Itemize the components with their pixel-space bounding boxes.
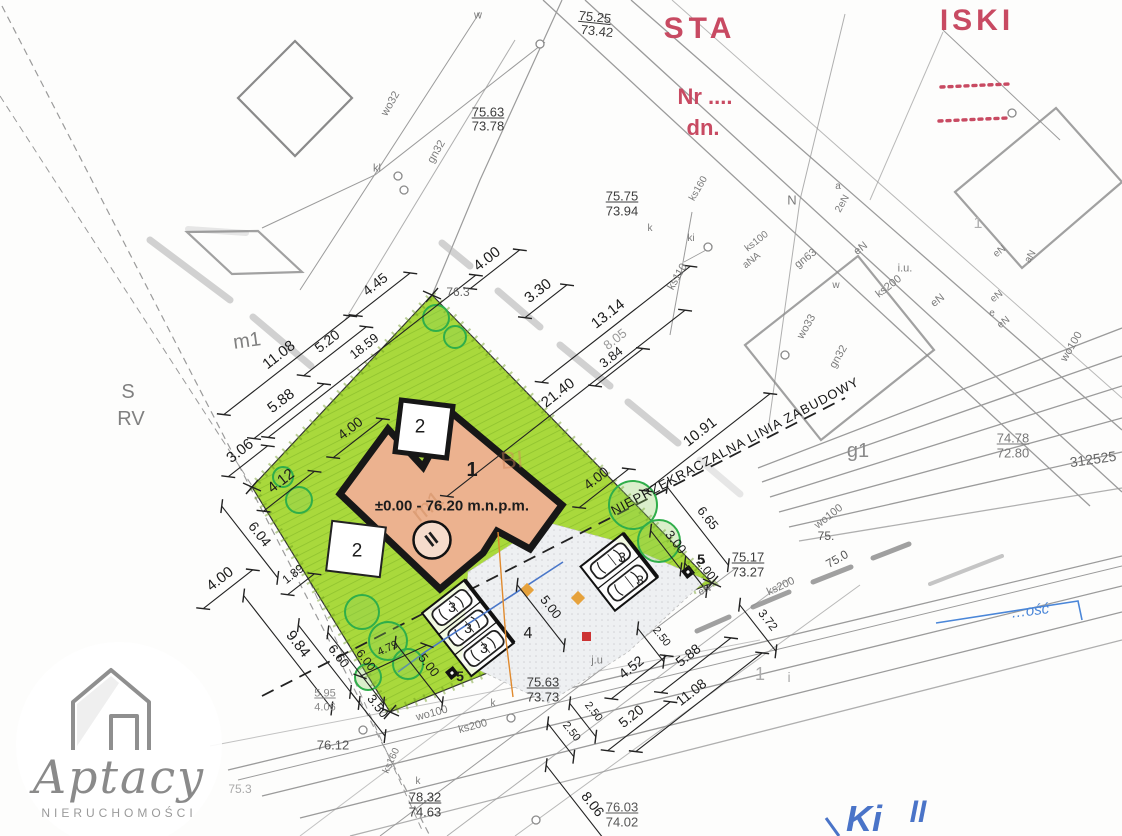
red-node-icon	[582, 632, 591, 641]
blue-box-outline	[936, 601, 1082, 623]
tree-icon	[273, 467, 293, 487]
manhole-icon	[359, 726, 367, 734]
dimension-line	[349, 272, 417, 316]
site-plan-scan: STAISKINr ....dn.75.2573.4275.6373.7875.…	[0, 0, 1122, 836]
tree-icon	[345, 595, 379, 629]
agency-watermark: Aptacy NIERUCHOMOŚCI	[16, 642, 222, 836]
neighbour-building-outline	[238, 41, 352, 156]
dimension-line	[463, 249, 527, 289]
terrace-bottom	[326, 521, 386, 577]
stamp-dotted-lines	[939, 84, 1009, 121]
dimension-line	[588, 348, 650, 387]
manhole-icon	[536, 40, 544, 48]
manhole-icon	[1008, 109, 1016, 117]
manhole-icon	[781, 351, 789, 359]
manhole-icon	[704, 243, 712, 251]
manhole-icon	[532, 816, 540, 824]
manhole-icon	[400, 186, 408, 194]
dimension-line	[297, 326, 374, 377]
dimension-line	[639, 393, 777, 492]
dimension-line	[535, 265, 698, 383]
terrace-top	[395, 400, 453, 458]
storey-circle	[414, 522, 451, 559]
tree-icon	[423, 305, 449, 331]
road-edge-dashes	[697, 544, 1002, 631]
house-icon	[59, 660, 179, 756]
tree-icon	[444, 326, 466, 348]
agency-name: Aptacy	[33, 750, 205, 804]
blue-ink-stroke	[826, 818, 839, 836]
neighbour-buildings	[187, 41, 1122, 440]
agency-subtitle: NIERUCHOMOŚCI	[41, 806, 196, 820]
manhole-icon	[507, 714, 515, 722]
manhole-icon	[394, 172, 402, 180]
